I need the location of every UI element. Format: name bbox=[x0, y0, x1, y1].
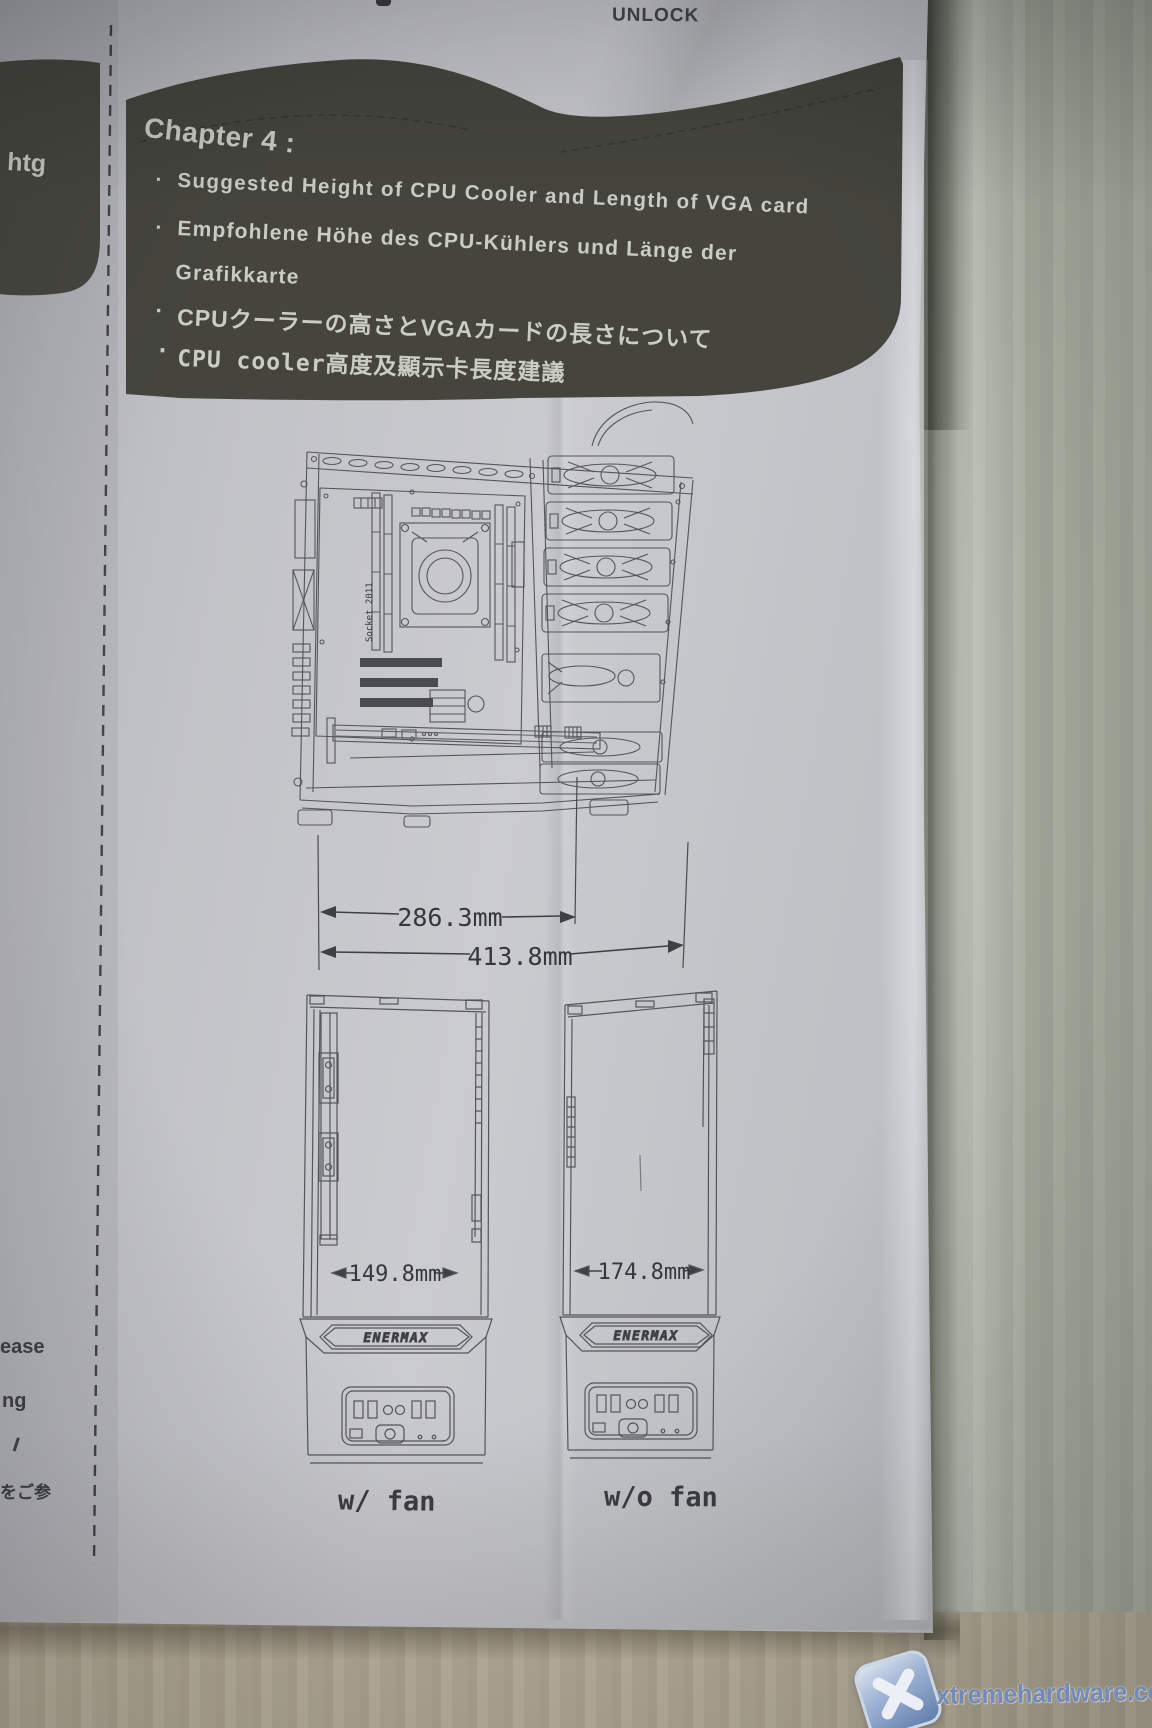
case-back-wall bbox=[300, 452, 307, 800]
chapter-bullet-de-wrap: Grafikkarte bbox=[175, 261, 300, 290]
audio-jack bbox=[384, 1406, 393, 1415]
power-button bbox=[619, 1419, 647, 1437]
usb-port bbox=[412, 1401, 421, 1418]
margin-text-fragment: をご参 bbox=[0, 1478, 51, 1503]
usb-port bbox=[354, 1401, 363, 1418]
case-interior-diagram: Socket 2011 286.3mm 413.8mm bbox=[262, 392, 702, 982]
front-io-panel bbox=[342, 1387, 454, 1445]
tower-face bbox=[306, 1337, 486, 1463]
front-io-panel bbox=[585, 1383, 697, 1439]
bullet-dot: · bbox=[155, 168, 166, 192]
usb-port bbox=[611, 1395, 620, 1412]
unlock-label: UNLOCK bbox=[612, 5, 700, 28]
enermax-logo: ENERMAX bbox=[363, 1331, 428, 1346]
case-foot bbox=[404, 816, 430, 827]
vga-card bbox=[327, 718, 600, 763]
case-bottom bbox=[300, 794, 660, 814]
dim-with-fan-text: 149.8mm bbox=[349, 1262, 442, 1287]
bullet-dot: · bbox=[155, 338, 166, 372]
cmos-battery bbox=[468, 696, 484, 712]
watermark-text: xtremehardware.com bbox=[936, 1676, 1152, 1711]
dim-full-text: 413.8mm bbox=[467, 942, 572, 971]
power-button bbox=[376, 1425, 404, 1443]
previous-panel-text-fragment: htg bbox=[6, 148, 46, 179]
ram-slots-left bbox=[372, 493, 392, 652]
usb-port bbox=[597, 1395, 606, 1412]
photo-of-manual-page: htg Chapter 4 : · Suggested Height of CP… bbox=[0, 0, 1152, 1728]
socket-label: Socket 2011 bbox=[365, 582, 375, 642]
tower-without-fan bbox=[560, 991, 720, 1458]
margin-text-fragment: ng bbox=[2, 1390, 26, 1413]
drive-cage-wall bbox=[530, 458, 552, 770]
audio-jack bbox=[627, 1400, 636, 1409]
bullet-dot: · bbox=[155, 216, 166, 240]
margin-text-fragment: ease bbox=[0, 1336, 45, 1359]
dimension-inner-depth: 286.3mm bbox=[320, 903, 576, 932]
tower-clearance-diagrams: 149.8mm 174.8mm ENERMAX ENERMAX bbox=[280, 985, 740, 1565]
usb-port bbox=[368, 1401, 377, 1418]
case-front-wall bbox=[655, 480, 693, 795]
dim-inner-text: 286.3mm bbox=[397, 903, 502, 932]
vrm-chokes bbox=[412, 508, 490, 519]
dim-without-fan-text: 174.8mm bbox=[598, 1260, 691, 1285]
chapter-line-text: Grafikkarte bbox=[175, 261, 300, 290]
enermax-logo: ENERMAX bbox=[613, 1329, 678, 1344]
usb-port bbox=[426, 1401, 435, 1418]
cpu-socket bbox=[400, 523, 490, 627]
audio-jack bbox=[639, 1400, 648, 1409]
usb-port bbox=[655, 1395, 664, 1412]
reset-button bbox=[593, 1423, 605, 1432]
dimension-full-depth: 413.8mm bbox=[320, 940, 684, 971]
fan-bracket bbox=[319, 1013, 338, 1245]
audio-jack bbox=[396, 1406, 405, 1415]
atx-connector bbox=[512, 542, 524, 587]
case-foot bbox=[298, 810, 332, 825]
cropped-graphic-fragment bbox=[376, 0, 391, 6]
usb-port bbox=[669, 1395, 678, 1412]
odd-bay bbox=[542, 654, 660, 702]
pcie-slots bbox=[360, 658, 442, 707]
caption-with-fan: w/ fan bbox=[338, 1485, 436, 1517]
case-handle bbox=[592, 402, 693, 446]
reset-button bbox=[350, 1429, 362, 1438]
case-foot bbox=[590, 800, 628, 815]
caption-without-fan: w/o fan bbox=[604, 1482, 718, 1514]
bullet-dot: · bbox=[155, 297, 166, 331]
tower-with-fan bbox=[300, 995, 492, 1463]
expansion-slot-covers bbox=[292, 644, 310, 736]
